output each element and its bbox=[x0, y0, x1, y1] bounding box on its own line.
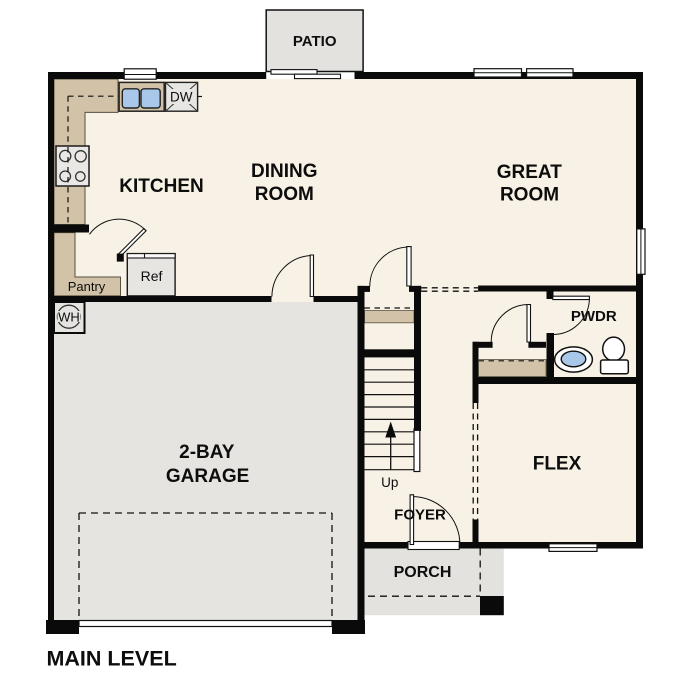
svg-text:ROOM: ROOM bbox=[500, 184, 559, 205]
svg-text:FLEX: FLEX bbox=[533, 454, 582, 475]
svg-text:Up: Up bbox=[381, 475, 398, 490]
svg-text:DW: DW bbox=[170, 90, 193, 105]
svg-text:ROOM: ROOM bbox=[255, 184, 314, 205]
svg-text:FOYER: FOYER bbox=[394, 507, 446, 524]
svg-text:MAIN LEVEL: MAIN LEVEL bbox=[47, 647, 177, 671]
svg-text:Pantry: Pantry bbox=[68, 279, 106, 294]
svg-text:Ref: Ref bbox=[141, 268, 163, 284]
svg-text:GARAGE: GARAGE bbox=[166, 466, 249, 487]
svg-text:2-BAY: 2-BAY bbox=[179, 442, 235, 463]
svg-text:PORCH: PORCH bbox=[394, 564, 452, 581]
svg-text:DINING: DINING bbox=[251, 161, 318, 182]
svg-text:KITCHEN: KITCHEN bbox=[119, 176, 203, 197]
svg-text:GREAT: GREAT bbox=[497, 162, 562, 183]
svg-text:PATIO: PATIO bbox=[293, 33, 337, 50]
svg-text:WH: WH bbox=[58, 310, 80, 325]
svg-text:PWDR: PWDR bbox=[571, 308, 617, 325]
